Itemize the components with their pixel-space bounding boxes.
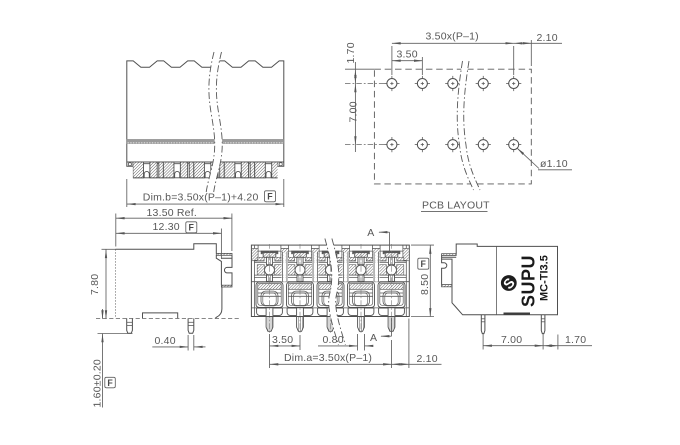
svg-text:F: F <box>107 378 113 388</box>
svg-text:0.40: 0.40 <box>155 335 176 347</box>
svg-text:1.60±0.20: 1.60±0.20 <box>92 359 104 407</box>
svg-text:0.80: 0.80 <box>323 334 344 346</box>
svg-text:1.70: 1.70 <box>565 334 586 346</box>
svg-text:3.50: 3.50 <box>272 334 293 346</box>
svg-text:2.10: 2.10 <box>417 353 438 365</box>
svg-text:1.70: 1.70 <box>345 42 357 63</box>
svg-text:7.00: 7.00 <box>348 101 360 122</box>
svg-text:8.50: 8.50 <box>419 274 431 295</box>
svg-text:PCB LAYOUT: PCB LAYOUT <box>422 199 490 211</box>
svg-text:S: S <box>500 274 518 292</box>
svg-text:7.00: 7.00 <box>501 334 522 346</box>
svg-text:Dim.a=3.50x(P–1): Dim.a=3.50x(P–1) <box>284 352 372 364</box>
svg-text:SUPU: SUPU <box>519 255 539 307</box>
svg-text:Dim.b=3.50x(P–1)+4.20: Dim.b=3.50x(P–1)+4.20 <box>143 191 259 203</box>
svg-text:7.80: 7.80 <box>89 274 101 295</box>
svg-text:ø1.10: ø1.10 <box>540 158 568 170</box>
svg-text:3.50x(P–1): 3.50x(P–1) <box>426 31 479 43</box>
svg-text:13.50 Ref.: 13.50 Ref. <box>147 207 197 219</box>
svg-text:MC-TI3.5: MC-TI3.5 <box>538 255 550 301</box>
svg-text:12.30: 12.30 <box>153 221 180 233</box>
svg-text:F: F <box>267 192 273 202</box>
svg-text:3.50: 3.50 <box>397 49 418 61</box>
svg-text:F: F <box>421 259 427 269</box>
svg-text:A: A <box>367 227 374 239</box>
svg-text:A: A <box>370 332 377 344</box>
svg-text:F: F <box>189 223 195 233</box>
svg-text:2.10: 2.10 <box>537 32 558 44</box>
